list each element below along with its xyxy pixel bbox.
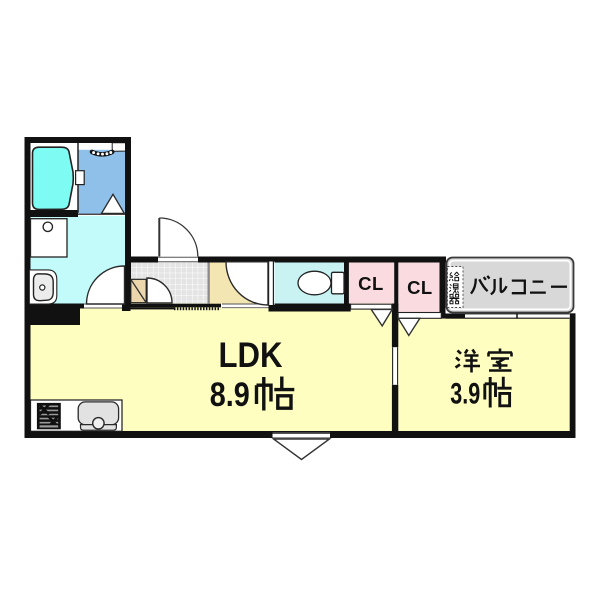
svg-text:CL: CL: [407, 277, 433, 298]
svg-text:LDK: LDK: [219, 336, 283, 375]
svg-text:CL: CL: [358, 273, 384, 294]
svg-text:3.9: 3.9: [450, 377, 480, 410]
svg-text:8.9: 8.9: [210, 376, 250, 414]
